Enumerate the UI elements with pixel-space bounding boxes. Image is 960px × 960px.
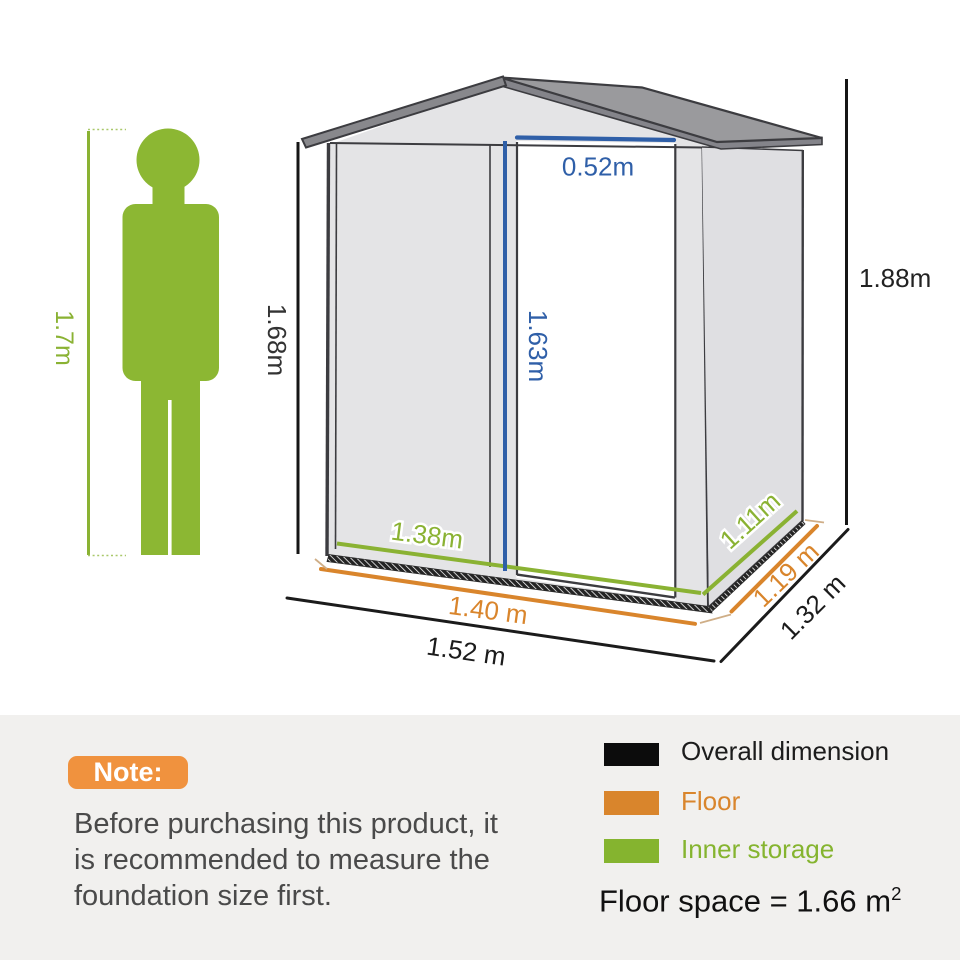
svg-text:1.63m: 1.63m bbox=[523, 310, 553, 382]
svg-text:1.68m: 1.68m bbox=[262, 304, 292, 376]
svg-text:0.52m: 0.52m bbox=[562, 152, 634, 182]
svg-text:1.7m: 1.7m bbox=[50, 310, 78, 366]
svg-text:1.52 m: 1.52 m bbox=[425, 631, 508, 672]
svg-text:1.88m: 1.88m bbox=[859, 263, 931, 293]
